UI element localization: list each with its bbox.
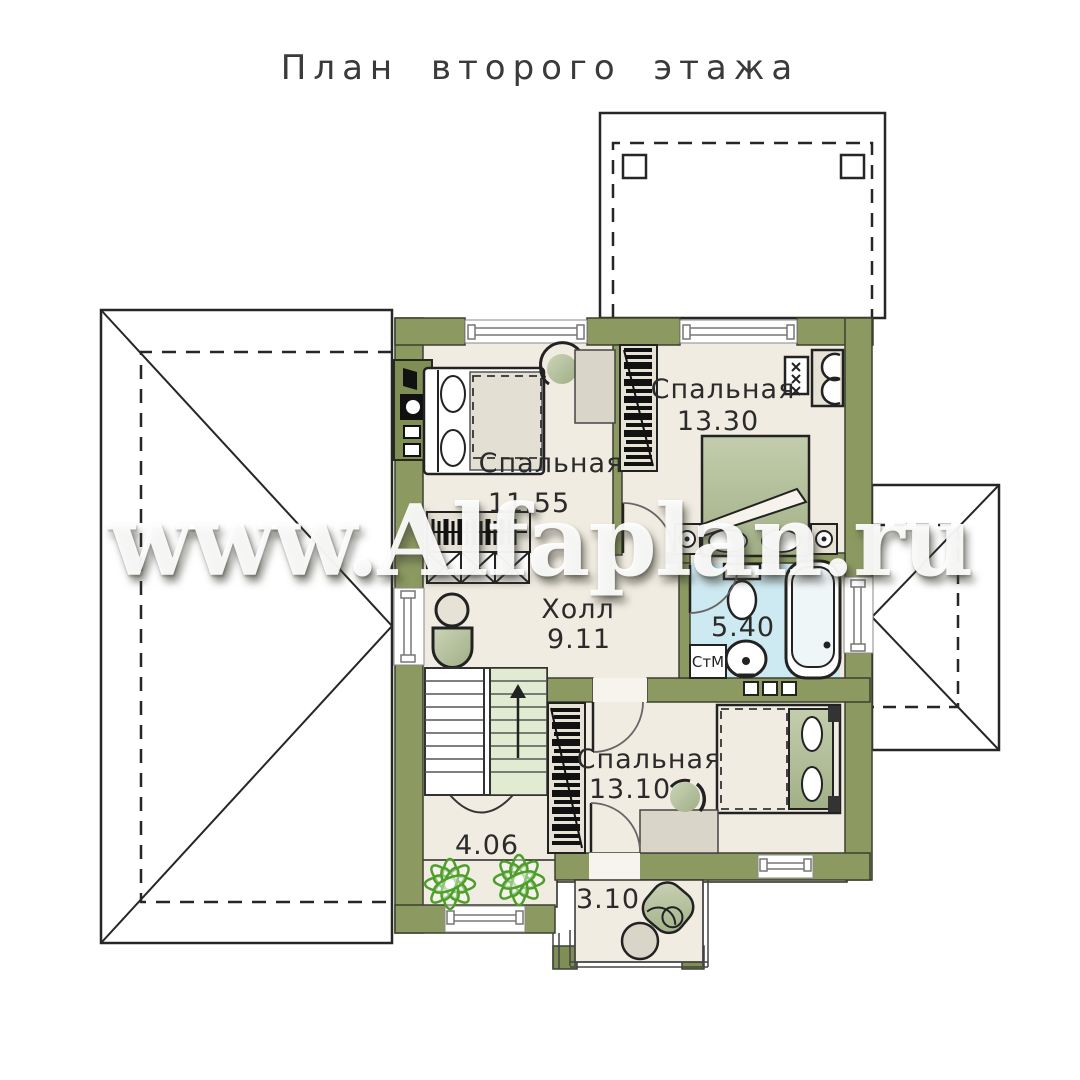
hall-armchair-icon <box>433 594 472 668</box>
hall-closet <box>427 512 530 583</box>
hall-name: Холл <box>541 594 615 625</box>
floor-plan-page: Спальная 11.55 Спальная 13.30 Холл 9.11 … <box>0 0 1080 1080</box>
plant-icon <box>494 855 544 905</box>
bedroom2-area: 13.30 <box>677 406 759 437</box>
dresser-icon <box>575 350 615 423</box>
terrace-column <box>623 155 646 178</box>
bedroom1-area: 11.55 <box>488 488 570 519</box>
double-bed-icon <box>717 705 840 813</box>
attic-area: 4.06 <box>455 830 519 861</box>
terrace <box>600 113 885 318</box>
closet-shelves <box>427 552 529 583</box>
bedroom2-name: Спальная <box>651 374 796 405</box>
window-top-right <box>680 320 797 343</box>
washing-machine-label: СтМ <box>692 653 724 671</box>
window-bottom-bedroom <box>758 855 813 878</box>
balcony-area: 3.10 <box>576 884 640 915</box>
page-title: План второго этажа <box>0 48 1080 88</box>
double-bed-icon <box>702 436 809 556</box>
bath-dresser-icon <box>744 682 796 695</box>
bedroom1-name: Спальная <box>479 448 624 479</box>
nightstand-icon <box>811 524 837 554</box>
desk-icon <box>640 810 718 853</box>
window-right <box>844 577 873 653</box>
washbasin-icon <box>726 641 766 677</box>
terrace-column <box>841 155 864 178</box>
bedroom3-name: Спальная <box>577 744 722 775</box>
staircase <box>425 668 547 813</box>
wardrobe-bedroom2 <box>620 345 657 471</box>
window-left <box>394 588 424 665</box>
wardrobe-bedroom3 <box>548 703 585 853</box>
garage-roof <box>101 310 392 943</box>
bathtub-icon <box>786 561 840 678</box>
glasses-dresser-icon <box>812 350 843 406</box>
bedroom3-area: 13.10 <box>589 774 671 805</box>
window-top-left <box>465 320 587 343</box>
balcony-table-icon <box>622 923 658 959</box>
hall-area: 9.11 <box>547 624 611 655</box>
nightstand-icon <box>675 524 700 554</box>
bay-roof <box>872 485 999 750</box>
bathroom-area: 5.40 <box>711 612 775 643</box>
plant-icon <box>425 859 475 909</box>
floor-plan-drawing: Спальная 11.55 Спальная 13.30 Холл 9.11 … <box>0 0 1080 1080</box>
window-bottom-attic <box>445 906 525 932</box>
